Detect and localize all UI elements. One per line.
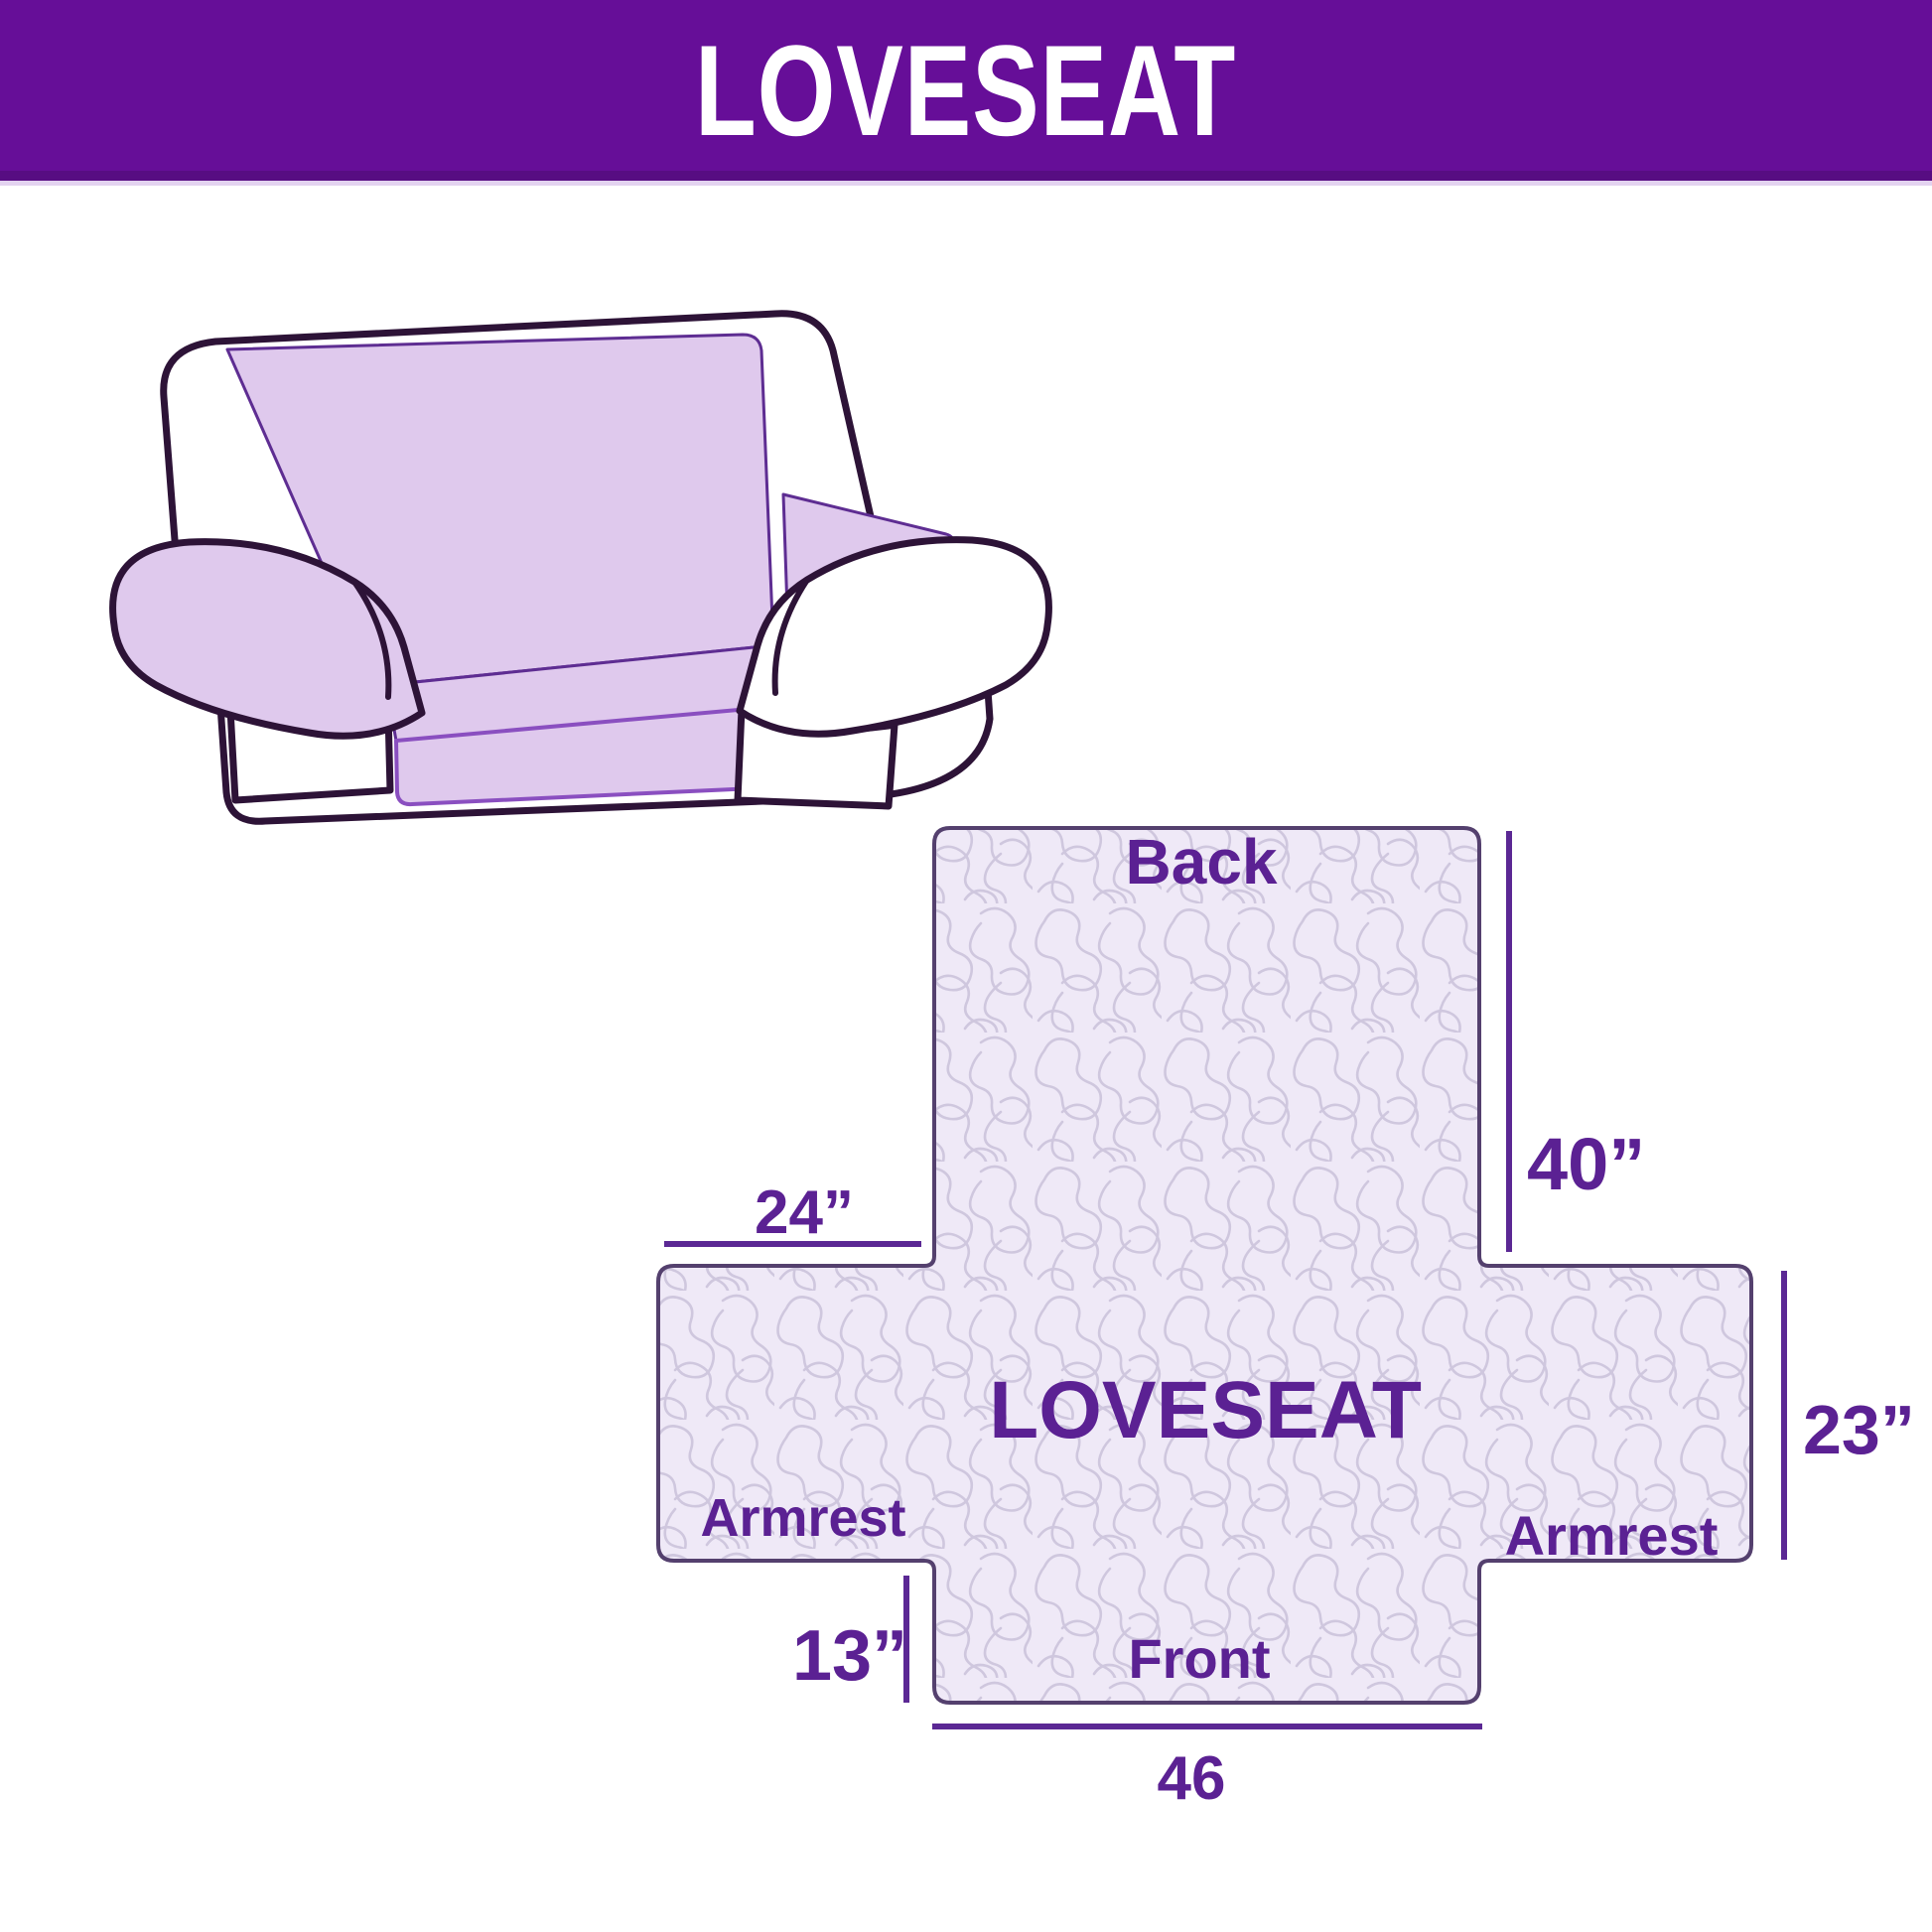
front-panel-label: Front <box>1128 1627 1270 1690</box>
dim-value-armrest-side: 23” <box>1803 1391 1915 1468</box>
dim-value-front-width: 46 <box>1158 1744 1226 1813</box>
slipcover-measurement-diagram: Back LOVESEAT Armrest Armrest Front 24” … <box>0 0 1932 1932</box>
armrest-right-label: Armrest <box>1505 1504 1719 1567</box>
armrest-left-label: Armrest <box>700 1488 905 1548</box>
dim-value-front-side: 13” <box>792 1616 907 1696</box>
title-banner: LOVESEAT <box>0 0 1932 186</box>
loveseat-illustration <box>94 298 1067 854</box>
infographic-page: LOVESEAT <box>0 0 1932 1932</box>
dim-value-armrest-top: 24” <box>755 1178 854 1247</box>
back-panel-label: Back <box>1126 826 1278 897</box>
dim-value-back-height: 40” <box>1527 1123 1645 1205</box>
flat-cover-shape <box>658 828 1751 1703</box>
page-title: LOVESEAT <box>695 26 1236 155</box>
dimension-lines <box>667 834 1784 1726</box>
center-loveseat-label: LOVESEAT <box>989 1365 1422 1455</box>
